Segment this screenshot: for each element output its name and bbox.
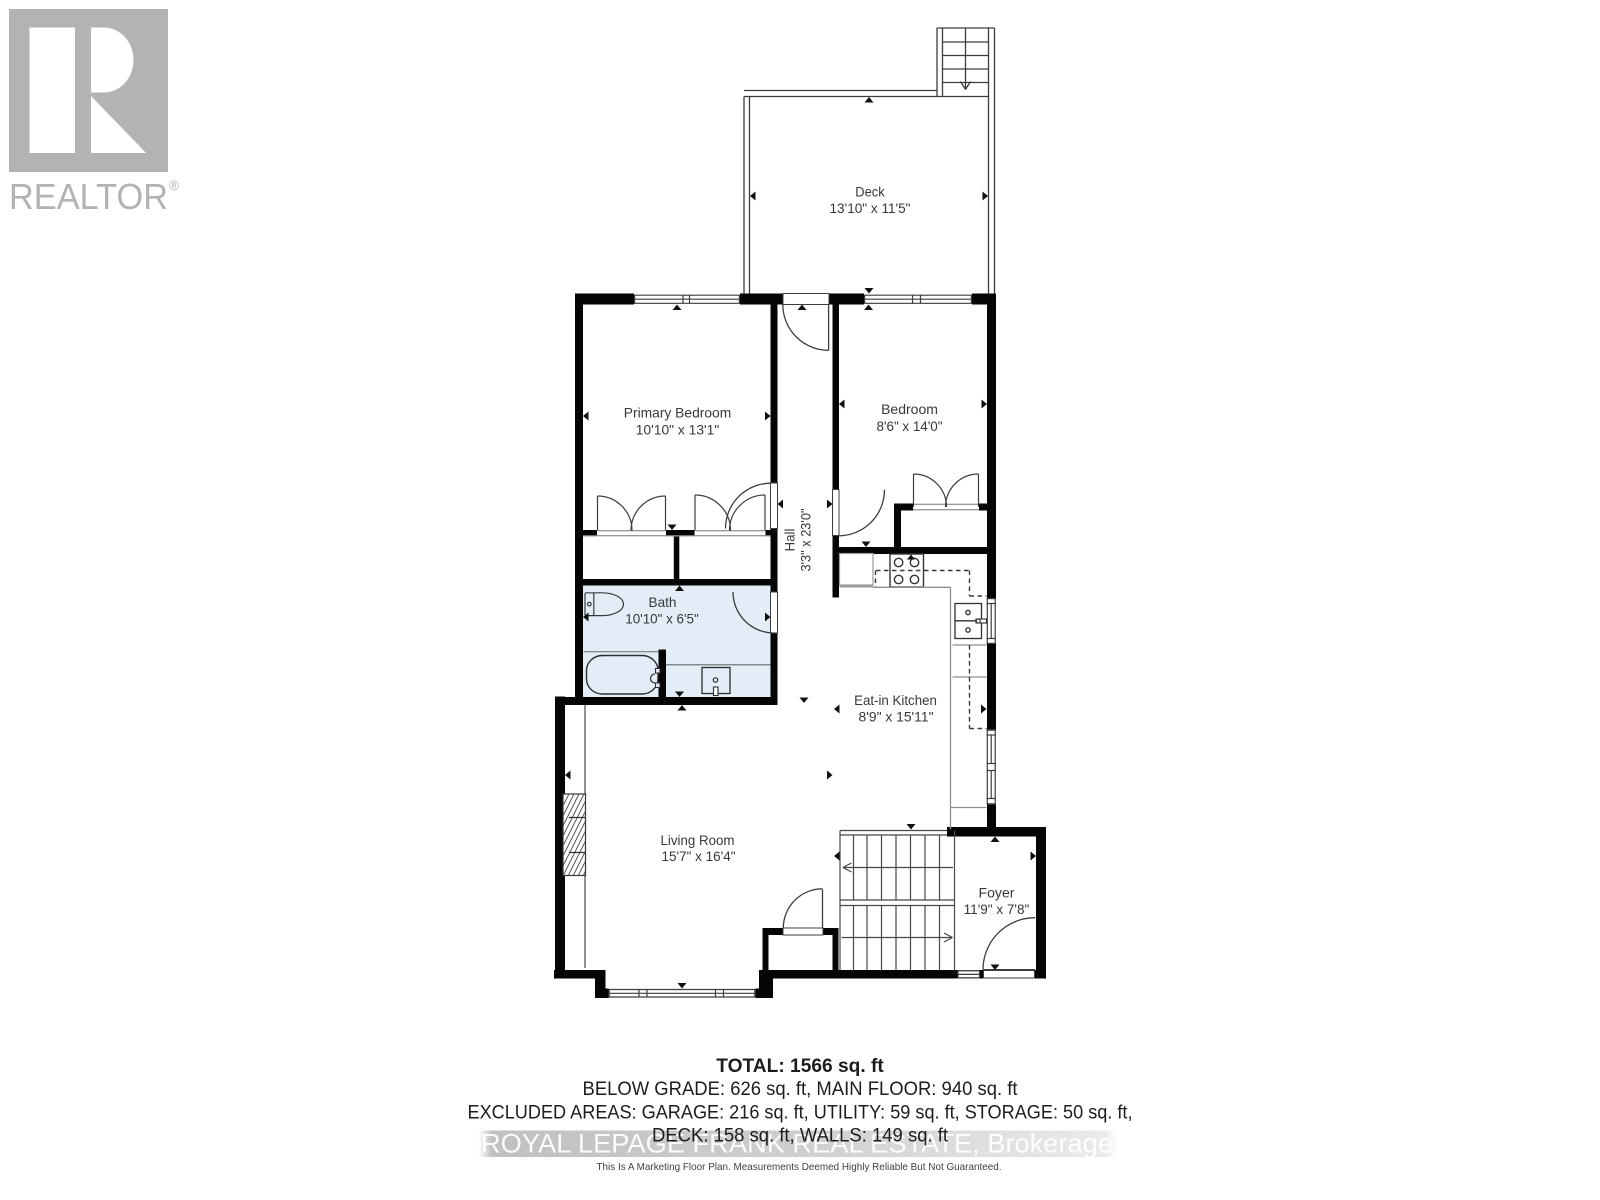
svg-text:Foyer: Foyer <box>979 885 1015 901</box>
svg-text:Bedroom: Bedroom <box>881 401 938 417</box>
svg-text:8'6" x 14'0": 8'6" x 14'0" <box>877 418 943 434</box>
svg-text:BELOW GRADE: 626 sq. ft, MAIN: BELOW GRADE: 626 sq. ft, MAIN FLOOR: 940… <box>583 1079 1019 1100</box>
svg-text:3'3" x 23'0": 3'3" x 23'0" <box>798 508 814 571</box>
svg-text:®: ® <box>169 177 180 193</box>
svg-text:Hall: Hall <box>782 529 798 552</box>
svg-text:10'10" x 13'1": 10'10" x 13'1" <box>636 422 720 438</box>
svg-text:Deck: Deck <box>855 184 885 200</box>
svg-text:This Is A Marketing Floor Plan: This Is A Marketing Floor Plan. Measurem… <box>597 1161 1002 1173</box>
svg-text:15'7" x 16'4": 15'7" x 16'4" <box>662 848 736 864</box>
svg-text:TOTAL: 1566 sq. ft: TOTAL: 1566 sq. ft <box>716 1056 884 1077</box>
svg-text:EXCLUDED AREAS: GARAGE: 216 sq: EXCLUDED AREAS: GARAGE: 216 sq. ft, UTIL… <box>468 1103 1133 1124</box>
svg-text:8'9" x 15'11": 8'9" x 15'11" <box>859 709 934 725</box>
svg-text:11'9" x 7'8": 11'9" x 7'8" <box>964 901 1030 917</box>
svg-text:REALTOR: REALTOR <box>9 176 168 217</box>
svg-text:DECK: 158 sq. ft, WALLS: 149 s: DECK: 158 sq. ft, WALLS: 149 sq. ft <box>652 1126 949 1147</box>
svg-text:Bath: Bath <box>649 594 677 610</box>
svg-text:Living Room: Living Room <box>661 832 735 848</box>
svg-text:13'10" x 11'5": 13'10" x 11'5" <box>830 200 911 216</box>
svg-text:Eat-in Kitchen: Eat-in Kitchen <box>854 692 937 708</box>
svg-text:Primary Bedroom: Primary Bedroom <box>624 405 732 421</box>
svg-text:10'10" x 6'5": 10'10" x 6'5" <box>625 611 699 627</box>
